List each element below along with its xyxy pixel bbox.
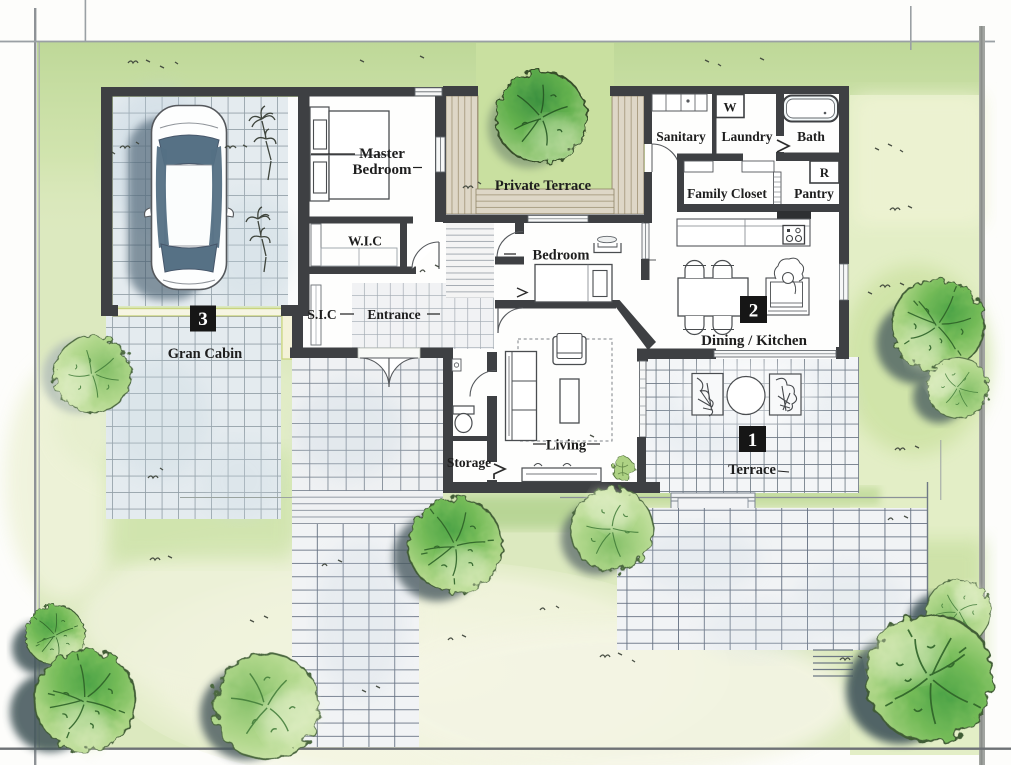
- svg-text:3: 3: [198, 309, 208, 330]
- svg-text:Private Terrace: Private Terrace: [495, 178, 592, 194]
- svg-text:1: 1: [748, 430, 758, 451]
- svg-text:2: 2: [749, 301, 759, 322]
- svg-text:Sanitary: Sanitary: [656, 129, 706, 144]
- svg-text:S.I.C: S.I.C: [307, 307, 336, 322]
- svg-text:Storage: Storage: [447, 455, 491, 470]
- svg-text:Master: Master: [359, 146, 405, 162]
- svg-text:W.I.C: W.I.C: [348, 234, 382, 249]
- svg-text:Family Closet: Family Closet: [687, 186, 767, 201]
- svg-text:Gran Cabin: Gran Cabin: [168, 346, 243, 362]
- svg-text:Pantry: Pantry: [794, 186, 834, 201]
- svg-text:Bedroom: Bedroom: [353, 162, 412, 178]
- svg-text:Bath: Bath: [797, 129, 825, 144]
- svg-text:Living: Living: [546, 438, 587, 454]
- svg-text:Terrace: Terrace: [728, 462, 776, 478]
- svg-text:R: R: [820, 165, 830, 180]
- svg-text:Bedroom: Bedroom: [533, 248, 590, 264]
- svg-text:Laundry: Laundry: [721, 129, 772, 144]
- svg-text:Entrance: Entrance: [367, 307, 420, 322]
- svg-text:Dining / Kitchen: Dining / Kitchen: [701, 333, 808, 349]
- svg-text:W: W: [724, 100, 737, 115]
